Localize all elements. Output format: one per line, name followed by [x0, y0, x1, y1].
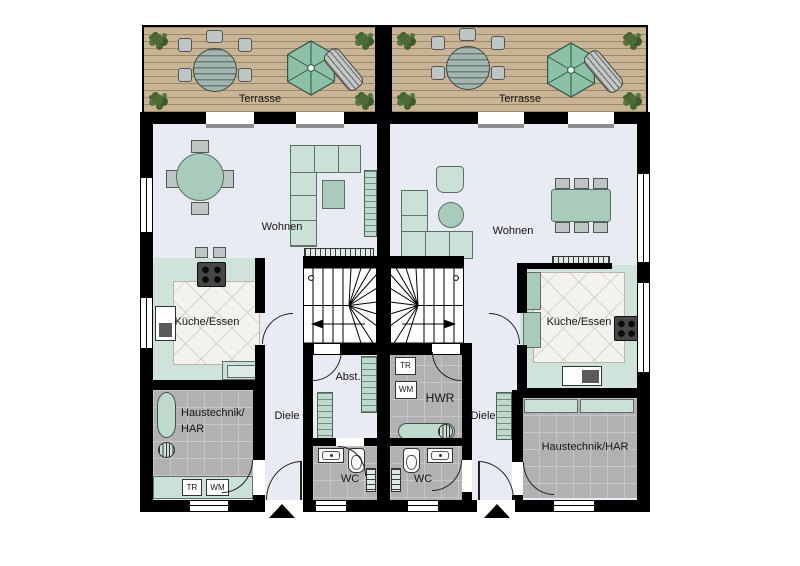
- terrace-table: [193, 48, 237, 92]
- door-opening: [336, 438, 364, 446]
- terrace-chair: [178, 38, 192, 52]
- plant-icon: [626, 34, 637, 45]
- dryer-box: TR: [395, 357, 416, 375]
- storage-cabinet: [361, 356, 377, 413]
- sliding-door: [296, 112, 344, 124]
- washer-box: WM: [395, 381, 417, 399]
- wall-kitchen-right-top: [520, 263, 612, 269]
- room-label-hall-left: Diele: [262, 410, 312, 423]
- window: [408, 500, 438, 512]
- sideboard: [524, 399, 578, 413]
- washer-label: WM: [399, 385, 413, 394]
- plant-icon: [152, 34, 163, 45]
- window: [637, 283, 650, 372]
- room-label-storage: Abst.: [328, 371, 368, 384]
- door-opening: [512, 462, 523, 495]
- sliding-door: [568, 112, 614, 124]
- terrace-chair: [491, 66, 505, 80]
- kitchen-appliance: [562, 366, 602, 386]
- room-label-living-right: Wohnen: [481, 225, 545, 238]
- door-leaf: [300, 461, 302, 500]
- room-label-hall-right: Diele: [458, 410, 508, 423]
- door-leaf: [478, 461, 480, 500]
- staircase-left: [303, 256, 377, 355]
- window: [140, 178, 153, 232]
- dining-chair: [191, 202, 209, 215]
- room-label-living-left: Wohnen: [250, 221, 314, 234]
- entrance-arrow-icon: [269, 504, 295, 518]
- room-label-utility-right: Haustechnik/HAR: [533, 441, 637, 454]
- ottoman: [322, 180, 345, 209]
- terrace-left-label: Terrasse: [200, 93, 320, 106]
- sliding-door: [206, 112, 254, 124]
- terrace-chair: [238, 38, 252, 52]
- window: [190, 500, 228, 512]
- dryer-label: TR: [400, 361, 411, 370]
- wall-wc-right-top: [390, 438, 462, 446]
- toilet: [403, 448, 420, 473]
- sliding-door: [478, 112, 524, 124]
- terrace-chair: [238, 68, 252, 82]
- wall-kitchen-right-bottom: [520, 388, 637, 398]
- dining-chair: [593, 222, 608, 233]
- dryer-box: TR: [182, 479, 202, 496]
- window: [554, 500, 594, 512]
- wall-kitchen-right-hall-lower: [517, 345, 527, 390]
- plant-icon: [358, 34, 369, 45]
- sliding-door-sill: [478, 124, 524, 128]
- water-heater: [157, 392, 176, 438]
- room-label-kitchen-right: Küche/Essen: [524, 316, 634, 329]
- terrace-chair: [431, 66, 445, 80]
- dining-chair: [574, 178, 589, 189]
- dining-chair: [555, 222, 570, 233]
- room-label-utility-left-2: HAR: [181, 423, 241, 436]
- terrace-chair: [491, 36, 505, 50]
- terrace-right-label: Terrasse: [460, 93, 580, 106]
- plant-icon: [626, 94, 637, 105]
- terrace-chair: [178, 68, 192, 82]
- room-label-kitchen-left: Küche/Essen: [152, 316, 262, 329]
- coffee-table: [438, 202, 464, 228]
- wall-kitchen-left-bottom: [140, 380, 265, 390]
- sliding-door-sill: [206, 124, 254, 128]
- door-opening: [253, 460, 265, 495]
- bar-stool: [195, 247, 208, 258]
- door-opening: [462, 460, 472, 492]
- dining-chair: [555, 178, 570, 189]
- dining-chair: [593, 178, 608, 189]
- wall-kitchen-left-hall-upper: [255, 258, 265, 313]
- cooktop-icon: [197, 262, 226, 287]
- wall-kitchen-left-hall-lower: [255, 345, 265, 390]
- terrace-chair: [431, 36, 445, 50]
- terrace-chair: [206, 30, 223, 43]
- sofa-right: [401, 231, 473, 259]
- room-label-hwr: HWR: [420, 392, 460, 405]
- wardrobe: [317, 392, 333, 440]
- dryer-label: TR: [187, 483, 198, 492]
- sliding-door-sill: [568, 124, 614, 128]
- dining-table: [551, 189, 611, 222]
- sliding-door-sill: [296, 124, 344, 128]
- dining-chair: [191, 140, 209, 153]
- floor-plan: Terrasse Terrasse TR WM: [0, 0, 800, 566]
- entrance-arrow-icon: [484, 504, 510, 518]
- wall-storage-left: [303, 355, 313, 500]
- room-label-wc-left: WC: [337, 473, 363, 486]
- plant-icon: [358, 94, 369, 105]
- bar-stool: [213, 247, 226, 258]
- dining-table-round: [176, 153, 224, 201]
- sideboard: [580, 399, 634, 413]
- room-label-utility-left-1: Haustechnik/: [181, 407, 256, 420]
- terrace-table: [446, 46, 490, 90]
- window: [637, 174, 650, 262]
- room-label-wc-right: WC: [410, 473, 436, 486]
- heat-pump-unit: [158, 442, 175, 458]
- heat-pump-unit: [438, 424, 453, 439]
- radiator: [366, 468, 376, 492]
- dining-chair: [574, 222, 589, 233]
- wall-kitchen-right-hall-upper: [517, 263, 527, 313]
- radiator: [391, 468, 401, 492]
- tv-sideboard: [364, 170, 377, 237]
- terrace-chair: [459, 28, 476, 41]
- sofa-left: [290, 145, 361, 173]
- plant-icon: [400, 94, 411, 105]
- plant-icon: [400, 34, 411, 45]
- plant-icon: [152, 94, 163, 105]
- window: [316, 500, 346, 512]
- party-wall: [377, 25, 390, 512]
- staircase-right: [390, 256, 464, 355]
- armchair: [436, 166, 464, 193]
